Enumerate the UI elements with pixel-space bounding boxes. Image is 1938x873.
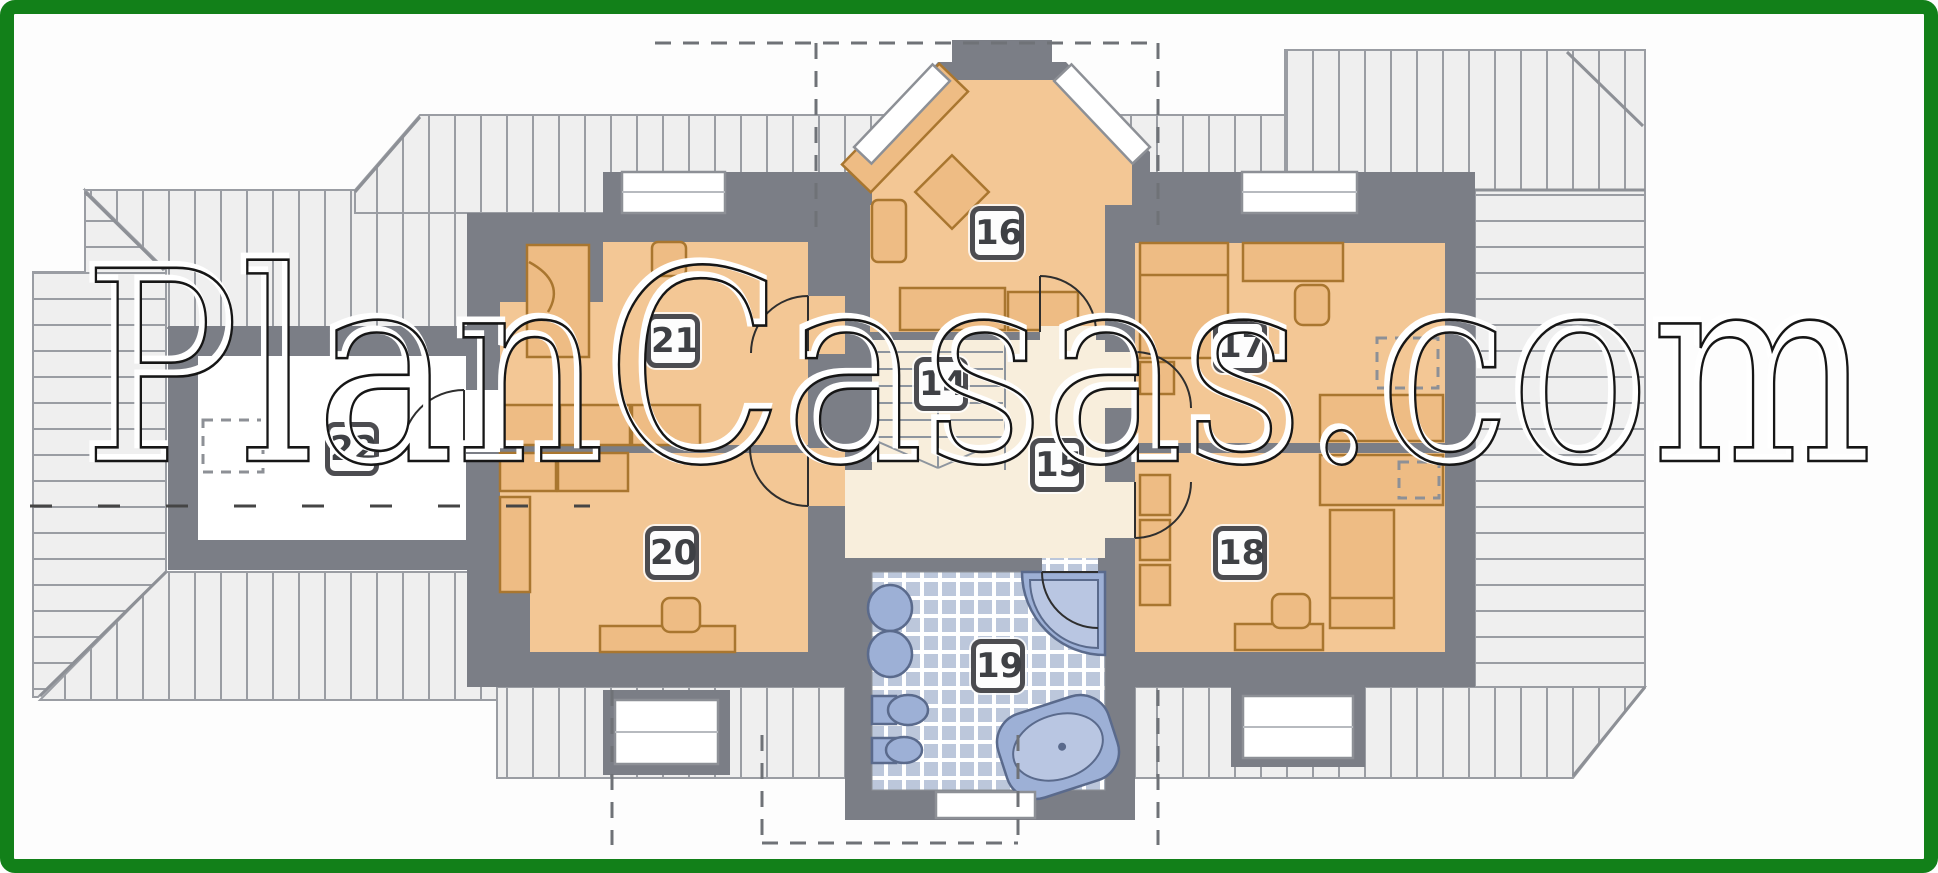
room-label-17: 17 — [1213, 319, 1267, 373]
plan-viewport: 141516171819202122 PlanCasas.com PlanCas… — [0, 0, 1938, 873]
room-label-18: 18 — [1213, 526, 1267, 580]
room-label-14: 14 — [914, 357, 968, 411]
room-labels: 141516171819202122 — [0, 0, 1938, 873]
room-label-15: 15 — [1030, 438, 1084, 492]
room-label-21: 21 — [646, 314, 700, 368]
room-label-19: 19 — [971, 639, 1025, 693]
room-label-16: 16 — [970, 206, 1024, 260]
room-label-20: 20 — [645, 526, 699, 580]
room-label-22: 22 — [325, 422, 379, 476]
